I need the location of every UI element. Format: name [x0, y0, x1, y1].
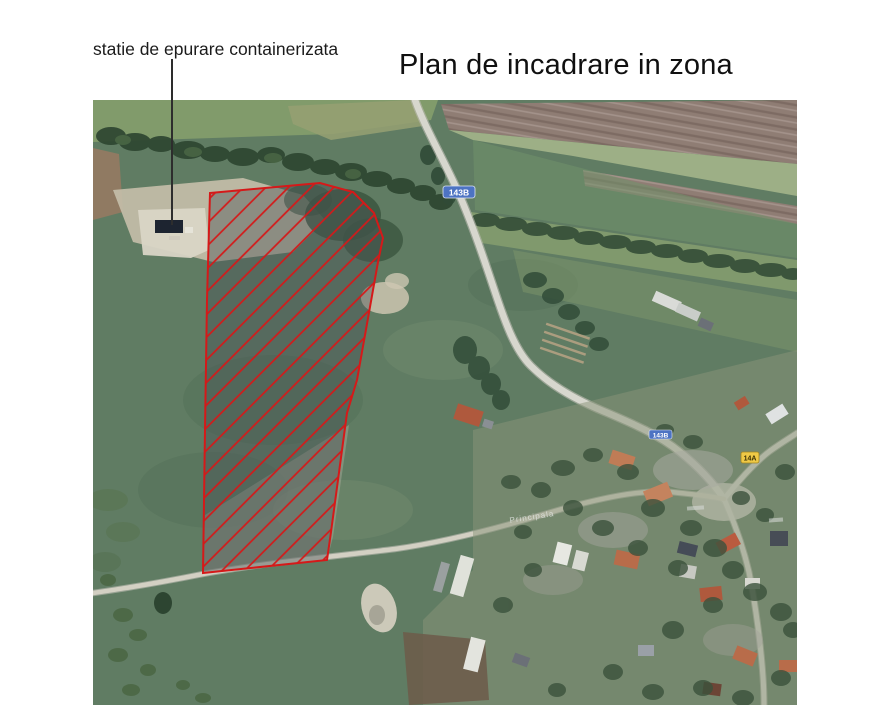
treatment-station — [138, 208, 209, 258]
satellite-map: 143B 143B 14A Principala — [93, 100, 797, 705]
annotation-leader-line — [171, 59, 173, 225]
page-title: Plan de incadrare in zona — [399, 49, 733, 82]
road-sign-yellow: 14A — [741, 452, 759, 463]
svg-text:143B: 143B — [653, 432, 669, 439]
svg-text:14A: 14A — [744, 456, 757, 463]
road-sign-blue-secondary: 143B — [649, 430, 672, 439]
treatment-station-building — [155, 220, 183, 233]
road-sign-blue-main: 143B — [443, 186, 475, 198]
page: { "title": { "text": "Plan de incadrare … — [0, 0, 886, 720]
station-annotation-label: statie de epurare containerizata — [93, 39, 338, 60]
svg-text:143B: 143B — [449, 188, 469, 198]
